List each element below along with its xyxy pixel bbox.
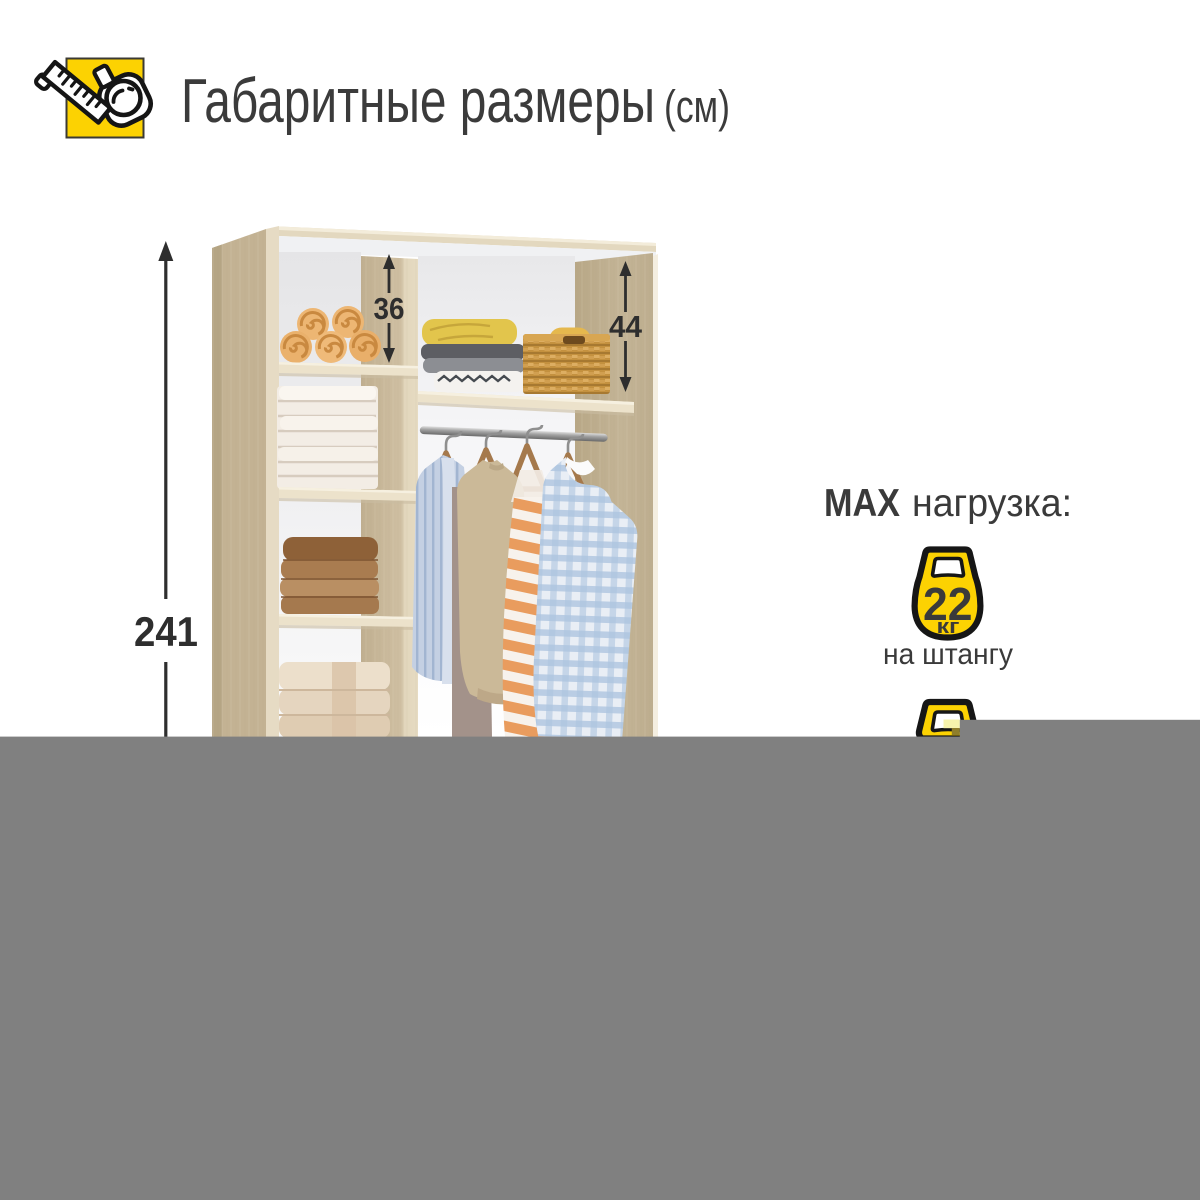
svg-text:кг: кг (937, 616, 960, 638)
svg-text:нагрузка:: нагрузка: (912, 482, 1072, 525)
svg-text:36: 36 (374, 291, 405, 326)
svg-text:MAX: MAX (824, 482, 900, 525)
svg-text:Габаритные размеры: Габаритные размеры (181, 67, 655, 136)
svg-text:44: 44 (609, 309, 643, 344)
svg-text:241: 241 (134, 608, 198, 655)
svg-text:на штангу: на штангу (883, 638, 1013, 671)
svg-text:(см): (см) (664, 81, 730, 132)
